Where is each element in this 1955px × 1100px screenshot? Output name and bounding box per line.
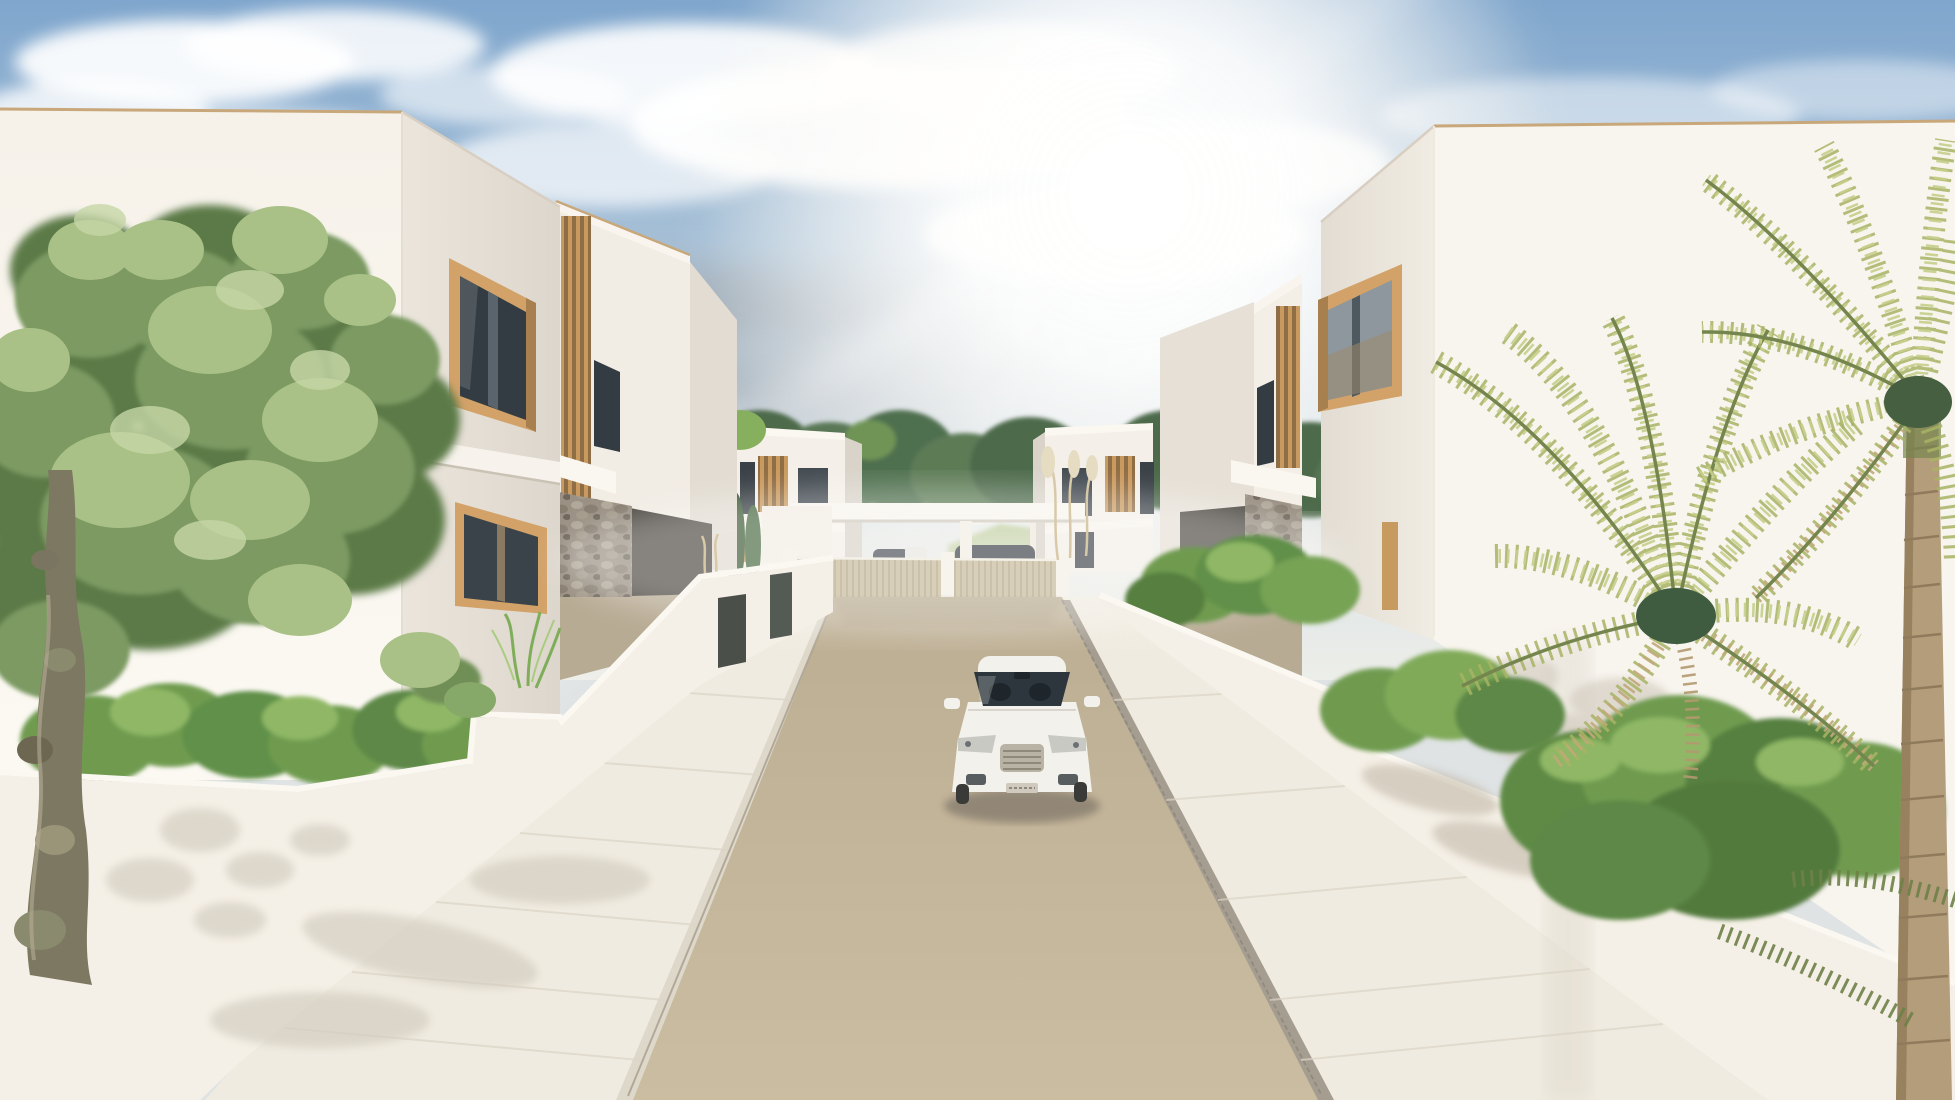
wheel-right <box>1074 782 1087 802</box>
headlight-left <box>958 735 996 753</box>
gate-post-dark <box>718 594 746 668</box>
car-mirror-right <box>1084 696 1100 707</box>
lower-window-frame <box>1382 522 1398 610</box>
wheel-left <box>956 784 969 804</box>
car-hood <box>958 702 1086 740</box>
headlight-right <box>1048 735 1086 753</box>
fog-light-right <box>1058 774 1078 785</box>
window <box>594 360 620 452</box>
rearview-mirror <box>1014 672 1030 679</box>
car-mirror-left <box>944 698 960 709</box>
window <box>1257 380 1274 466</box>
crown-core <box>1636 588 1716 644</box>
scene-svg <box>0 0 1955 1100</box>
fog-light-left <box>966 774 986 785</box>
wood-slat-column <box>1276 306 1300 468</box>
render-viewport <box>0 0 1955 1100</box>
gate-post-dark <box>770 572 792 639</box>
crown-core <box>1884 376 1952 428</box>
